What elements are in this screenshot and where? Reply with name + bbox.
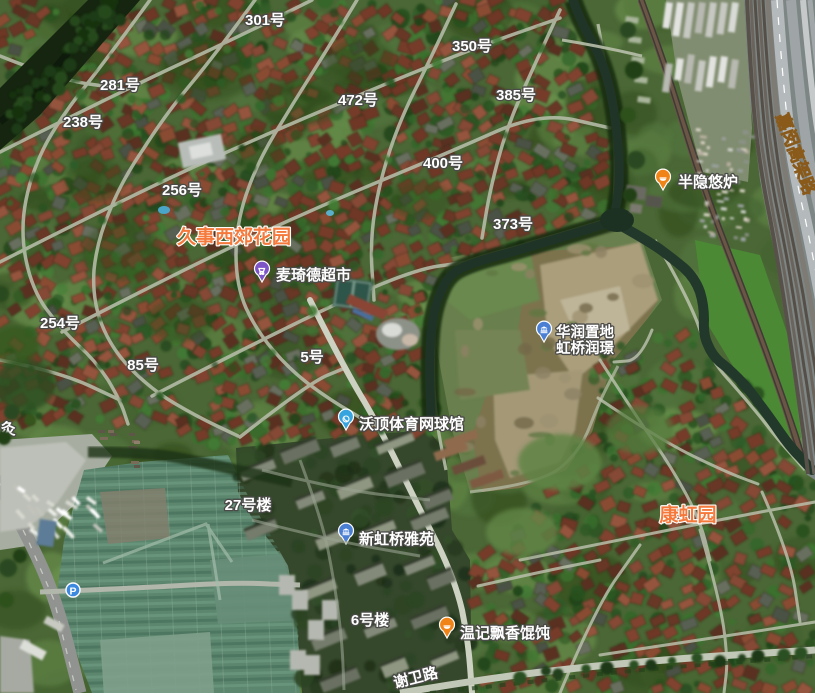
svg-text:373号: 373号 xyxy=(493,216,533,233)
svg-text:27号楼: 27号楼 xyxy=(225,496,272,514)
svg-text:5号: 5号 xyxy=(300,349,323,366)
svg-text:温记飘香馄饨: 温记飘香馄饨 xyxy=(460,624,550,642)
svg-text:康虹园: 康虹园 xyxy=(659,503,716,526)
svg-text:400号: 400号 xyxy=(423,155,463,172)
svg-text:350号: 350号 xyxy=(452,38,492,55)
svg-text:254号: 254号 xyxy=(40,315,80,332)
svg-text:P: P xyxy=(69,586,76,598)
svg-text:281号: 281号 xyxy=(100,77,140,94)
svg-text:256号: 256号 xyxy=(162,182,202,199)
svg-text:久事西郊花园: 久事西郊花园 xyxy=(177,225,291,248)
svg-text:385号: 385号 xyxy=(496,87,536,104)
svg-text:472号: 472号 xyxy=(338,92,378,109)
svg-text:华润置地: 华润置地 xyxy=(556,323,614,341)
svg-text:238号: 238号 xyxy=(63,114,103,131)
svg-text:85号: 85号 xyxy=(127,357,159,374)
svg-text:虹桥润璟: 虹桥润璟 xyxy=(556,339,614,357)
svg-text:麦琦德超市: 麦琦德超市 xyxy=(276,266,351,284)
svg-text:新虹桥雅苑: 新虹桥雅苑 xyxy=(359,530,434,548)
svg-text:6号楼: 6号楼 xyxy=(351,611,389,629)
svg-text:301号: 301号 xyxy=(245,12,285,29)
svg-text:沃顶体育网球馆: 沃顶体育网球馆 xyxy=(359,415,464,433)
svg-text:半隐悠炉: 半隐悠炉 xyxy=(678,173,738,191)
